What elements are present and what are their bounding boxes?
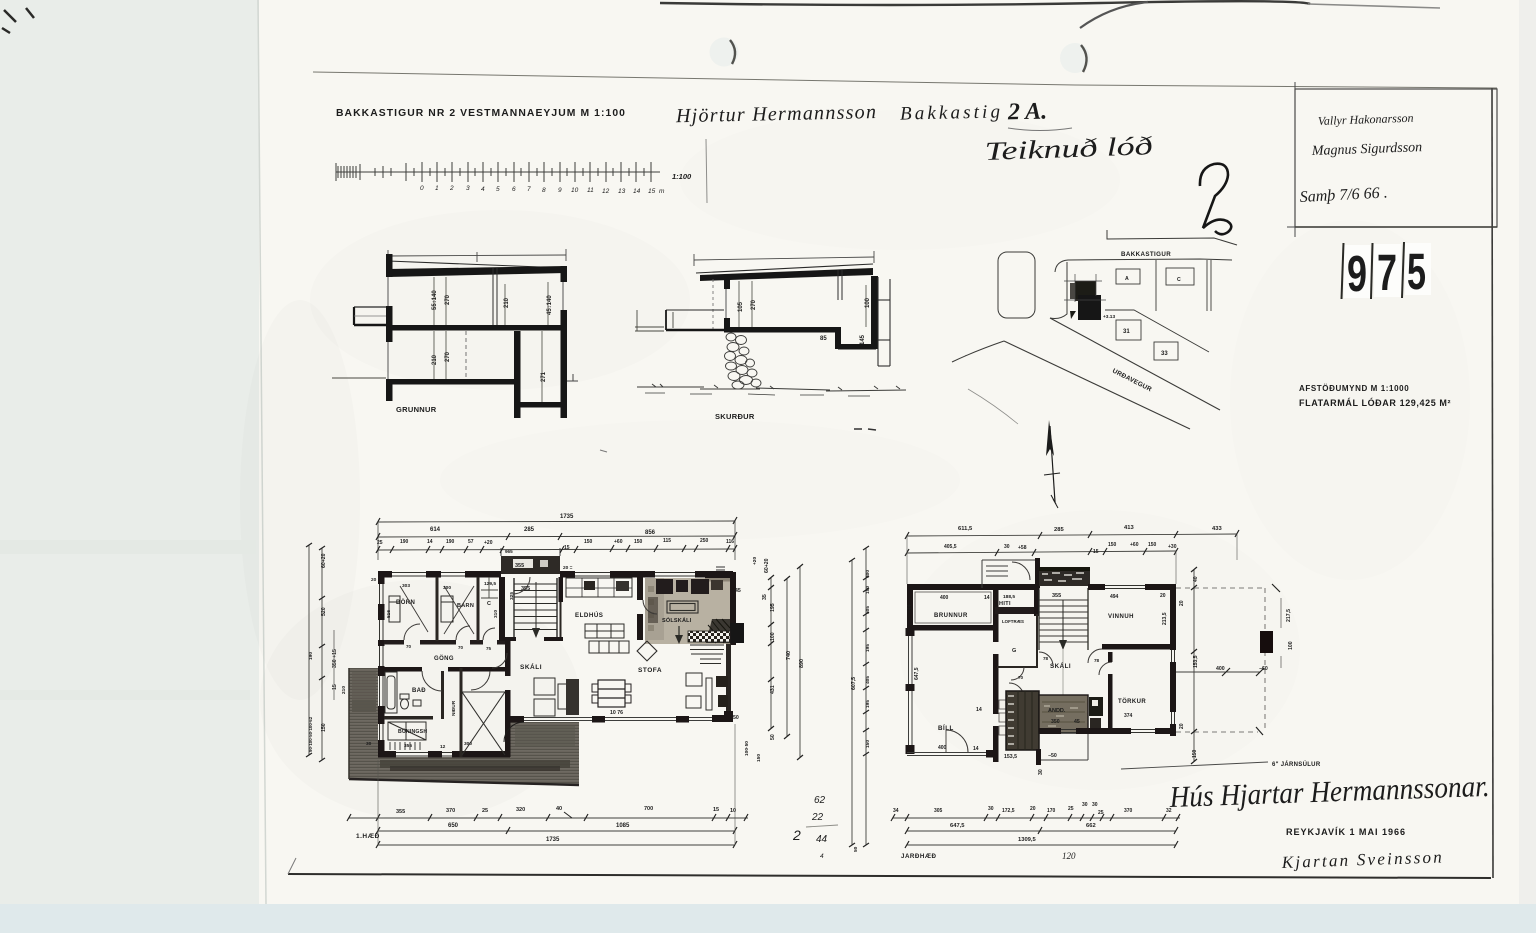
svg-text:15: 15 xyxy=(332,684,338,690)
svg-text:145: 145 xyxy=(860,334,866,345)
svg-text:6: 6 xyxy=(512,186,516,193)
svg-text:+3.13: +3.13 xyxy=(1103,314,1115,320)
svg-text:4: 4 xyxy=(820,853,824,860)
svg-text:14: 14 xyxy=(973,746,979,752)
svg-text:30: 30 xyxy=(1092,802,1098,808)
svg-text:370: 370 xyxy=(446,808,455,814)
svg-text:172,5: 172,5 xyxy=(1002,808,1015,814)
svg-text:m: m xyxy=(659,188,665,195)
svg-text:25: 25 xyxy=(1098,810,1104,816)
svg-text:195: 195 xyxy=(865,644,871,652)
svg-text:SÓLSKÁLI: SÓLSKÁLI xyxy=(662,616,692,624)
svg-text:31: 31 xyxy=(1123,329,1130,335)
svg-text:150: 150 xyxy=(321,723,327,732)
svg-text:856: 856 xyxy=(645,530,656,536)
svg-text:10: 10 xyxy=(571,187,579,194)
svg-text:ANDD.: ANDD. xyxy=(1048,708,1066,714)
svg-text:20: 20 xyxy=(371,577,377,583)
svg-text:150: 150 xyxy=(865,740,871,748)
svg-text:2: 2 xyxy=(792,827,801,843)
svg-text:30: 30 xyxy=(1004,544,1010,550)
svg-text:433: 433 xyxy=(1212,526,1222,532)
svg-text:15: 15 xyxy=(1093,549,1099,555)
svg-text:75: 75 xyxy=(486,646,492,651)
svg-text:SKÁLI: SKÁLI xyxy=(520,662,542,671)
svg-text:9: 9 xyxy=(1347,245,1367,302)
svg-text:+60: +60 xyxy=(614,539,623,545)
svg-text:400: 400 xyxy=(1216,666,1225,672)
svg-text:25: 25 xyxy=(377,540,383,546)
svg-text:9: 9 xyxy=(558,187,562,194)
svg-text:607,5: 607,5 xyxy=(851,677,857,690)
svg-text:20: 20 xyxy=(1160,593,1166,599)
svg-text:285: 285 xyxy=(524,527,535,533)
svg-text:1.HÆÐ: 1.HÆÐ xyxy=(356,833,380,840)
svg-text:NIÐUR: NIÐUR xyxy=(451,700,457,716)
svg-text:5: 5 xyxy=(496,186,500,193)
svg-text:505: 505 xyxy=(865,606,871,614)
svg-text:62: 62 xyxy=(814,795,826,806)
svg-text:150: 150 xyxy=(634,539,643,545)
svg-text:116: 116 xyxy=(726,539,734,545)
svg-text:Bakkastig: Bakkastig xyxy=(900,101,1000,124)
svg-text:30: 30 xyxy=(1038,769,1044,775)
svg-text:15: 15 xyxy=(564,545,570,551)
svg-text:195: 195 xyxy=(865,700,871,708)
svg-text:12: 12 xyxy=(440,744,446,750)
svg-text:30: 30 xyxy=(988,806,994,812)
svg-text:494: 494 xyxy=(1110,594,1119,600)
svg-text:FLATARMÁL LÓÐAR 129,425 M²: FLATARMÁL LÓÐAR 129,425 M² xyxy=(1299,397,1451,408)
svg-text:1: 1 xyxy=(435,185,439,192)
svg-text:370: 370 xyxy=(1124,808,1133,814)
svg-text:−50: −50 xyxy=(1048,753,1057,759)
svg-text:15: 15 xyxy=(713,807,719,813)
svg-text:210: 210 xyxy=(341,686,347,694)
svg-text:355: 355 xyxy=(396,809,405,815)
svg-text:1:100: 1:100 xyxy=(672,172,692,181)
svg-text:44: 44 xyxy=(907,604,913,610)
svg-text:ELDHÚS: ELDHÚS xyxy=(575,612,603,619)
svg-text:153,5: 153,5 xyxy=(1193,655,1199,668)
svg-text:650: 650 xyxy=(448,823,459,829)
svg-text:7: 7 xyxy=(527,186,531,193)
svg-text:190: 190 xyxy=(446,539,455,545)
svg-text:44: 44 xyxy=(816,834,828,845)
svg-text:+20: +20 xyxy=(484,540,493,546)
svg-text:+58: +58 xyxy=(1018,545,1027,551)
svg-text:AFSTÖÐUMYND M 1:1000: AFSTÖÐUMYND M 1:1000 xyxy=(1299,384,1409,393)
svg-text:5: 5 xyxy=(1407,243,1426,300)
svg-text:25: 25 xyxy=(1068,806,1074,812)
svg-text:4: 4 xyxy=(481,186,485,193)
svg-text:70: 70 xyxy=(406,644,412,649)
svg-text:303: 303 xyxy=(402,583,410,589)
svg-text:115: 115 xyxy=(663,538,671,544)
svg-text:70: 70 xyxy=(1018,675,1024,680)
svg-text:6" JÁRNSÚLUR: 6" JÁRNSÚLUR xyxy=(1272,761,1321,768)
svg-text:170: 170 xyxy=(1047,808,1056,814)
svg-text:BRUNNUR: BRUNNUR xyxy=(934,613,968,619)
svg-text:45: 45 xyxy=(735,588,741,594)
svg-text:70: 70 xyxy=(458,645,464,650)
svg-text:150: 150 xyxy=(756,754,762,762)
svg-text:50: 50 xyxy=(853,846,859,852)
svg-text:JARÐHÆÐ: JARÐHÆÐ xyxy=(901,853,937,860)
svg-text:60+20: 60+20 xyxy=(764,558,770,573)
svg-text:100: 100 xyxy=(1288,641,1294,650)
svg-text:153,5: 153,5 xyxy=(1004,754,1017,760)
svg-text:14: 14 xyxy=(976,707,982,713)
svg-text:285: 285 xyxy=(1054,527,1064,533)
svg-text:33: 33 xyxy=(1161,351,1168,357)
svg-text:431: 431 xyxy=(770,685,776,694)
svg-text:BAKKASTIGUR: BAKKASTIGUR xyxy=(1121,251,1171,258)
svg-text:129,5: 129,5 xyxy=(484,581,496,587)
svg-text:0: 0 xyxy=(420,185,424,192)
svg-text:C: C xyxy=(1177,277,1181,283)
svg-text:150: 150 xyxy=(865,586,871,594)
svg-text:85: 85 xyxy=(820,336,827,342)
svg-text:150: 150 xyxy=(1108,542,1117,548)
svg-text:15: 15 xyxy=(648,188,656,195)
svg-text:50: 50 xyxy=(733,715,739,721)
svg-text:VINNUH: VINNUH xyxy=(1108,614,1134,620)
svg-text:190: 190 xyxy=(400,539,409,545)
svg-text:BAÐ: BAÐ xyxy=(412,688,426,694)
svg-text:7: 7 xyxy=(1377,244,1397,301)
svg-text:2 A.: 2 A. xyxy=(1007,99,1048,126)
svg-text:890: 890 xyxy=(799,659,805,668)
svg-text:210: 210 xyxy=(432,354,438,365)
svg-text:1735: 1735 xyxy=(546,837,560,843)
svg-text:250: 250 xyxy=(700,538,709,544)
svg-text:213,5: 213,5 xyxy=(1162,612,1168,625)
svg-text:35: 35 xyxy=(762,594,768,600)
svg-text:BARN: BARN xyxy=(457,603,474,609)
svg-text:C: C xyxy=(487,601,491,607)
svg-text:14: 14 xyxy=(633,188,641,195)
svg-text:G: G xyxy=(1012,648,1016,654)
svg-text:14: 14 xyxy=(984,595,990,601)
svg-text:1735: 1735 xyxy=(560,514,574,520)
svg-text:34: 34 xyxy=(893,808,899,814)
svg-text:374: 374 xyxy=(1124,713,1133,719)
svg-text:GRUNNUR: GRUNNUR xyxy=(396,405,437,414)
svg-text:BAKKASTIGUR NR 2 VESTMANNAEYJU: BAKKASTIGUR NR 2 VESTMANNAEYJUM M 1:100 xyxy=(336,107,626,119)
svg-text:190: 190 xyxy=(308,652,314,660)
svg-text:2: 2 xyxy=(449,185,454,192)
svg-text:305: 305 xyxy=(934,808,943,814)
svg-text:325: 325 xyxy=(509,592,515,600)
svg-text:LOFTRÆS: LOFTRÆS xyxy=(1002,619,1024,624)
svg-text:22: 22 xyxy=(811,812,824,823)
svg-text:740: 740 xyxy=(786,651,792,660)
svg-text:20: 20 xyxy=(1030,806,1036,812)
svg-text:40: 40 xyxy=(1193,576,1199,582)
svg-text:HITI: HITI xyxy=(999,601,1011,607)
svg-text:20 =: 20 = xyxy=(563,565,573,571)
svg-text:405,5: 405,5 xyxy=(944,544,957,550)
svg-text:100·50: 100·50 xyxy=(744,741,750,756)
svg-text:78: 78 xyxy=(1043,656,1049,661)
svg-text:57: 57 xyxy=(468,539,474,545)
svg-text:14: 14 xyxy=(427,539,433,545)
svg-text:310: 310 xyxy=(493,610,499,618)
svg-text:20: 20 xyxy=(1179,723,1185,729)
svg-text:355: 355 xyxy=(515,563,524,569)
svg-text:78: 78 xyxy=(1094,658,1100,663)
svg-text:90·100·50·100·62: 90·100·50·100·62 xyxy=(308,716,313,752)
svg-text:50: 50 xyxy=(770,734,776,740)
svg-text:195: 195 xyxy=(770,603,776,612)
svg-text:11: 11 xyxy=(587,187,594,194)
svg-text:400: 400 xyxy=(938,745,947,751)
svg-text:647,5: 647,5 xyxy=(914,667,920,680)
svg-text:+30: +30 xyxy=(1168,544,1177,550)
svg-text:300: 300 xyxy=(443,585,451,591)
svg-text:355: 355 xyxy=(1052,593,1061,599)
svg-text:Teiknuð lóð: Teiknuð lóð xyxy=(984,131,1153,166)
svg-text:516: 516 xyxy=(386,610,392,618)
svg-text:350 +15: 350 +15 xyxy=(332,649,338,668)
svg-text:3: 3 xyxy=(466,185,470,192)
svg-text:188,5: 188,5 xyxy=(1003,594,1015,600)
svg-text:30: 30 xyxy=(1082,802,1088,808)
svg-text:60+20: 60+20 xyxy=(321,553,327,568)
svg-text:Hjörtur Hermannsson: Hjörtur Hermannsson xyxy=(675,101,876,127)
svg-text:40: 40 xyxy=(556,806,562,812)
svg-text:GÖNG: GÖNG xyxy=(434,655,454,662)
svg-text:20: 20 xyxy=(1179,600,1185,606)
svg-text:300: 300 xyxy=(464,741,472,747)
svg-text:STOFA: STOFA xyxy=(638,667,662,674)
svg-text:BÍLL: BÍLL xyxy=(938,724,954,732)
svg-text:662: 662 xyxy=(1086,823,1096,829)
svg-text:700: 700 xyxy=(644,806,653,812)
svg-text:150: 150 xyxy=(1192,749,1198,758)
svg-text:TÖRKUR: TÖRKUR xyxy=(1118,698,1146,705)
svg-text:REYKJAVÍK 1 MAI 1966: REYKJAVÍK 1 MAI 1966 xyxy=(1286,827,1406,838)
svg-text:55↕140: 55↕140 xyxy=(432,290,438,310)
svg-text:45: 45 xyxy=(1074,719,1080,725)
svg-text:520: 520 xyxy=(321,607,327,616)
svg-text:150: 150 xyxy=(584,539,593,545)
svg-text:10 76: 10 76 xyxy=(610,710,623,716)
svg-text:1085: 1085 xyxy=(616,823,630,829)
svg-text:+20: +20 xyxy=(752,557,758,565)
svg-text:400: 400 xyxy=(865,570,871,578)
svg-text:647,5: 647,5 xyxy=(950,823,965,829)
svg-text:30: 30 xyxy=(366,741,372,747)
svg-text:320: 320 xyxy=(516,807,525,813)
svg-text:100: 100 xyxy=(770,632,776,641)
svg-text:350: 350 xyxy=(1051,719,1060,725)
svg-text:25: 25 xyxy=(482,808,488,814)
svg-text:BÚNINGSH: BÚNINGSH xyxy=(398,728,427,735)
svg-text:217,5: 217,5 xyxy=(1286,609,1292,622)
svg-text:1309,5: 1309,5 xyxy=(1018,837,1037,843)
svg-text:611,5: 611,5 xyxy=(958,526,973,532)
svg-text:150: 150 xyxy=(1148,542,1157,548)
svg-text:A: A xyxy=(1125,276,1129,282)
svg-text:400: 400 xyxy=(940,595,949,601)
svg-text:12: 12 xyxy=(602,188,610,195)
svg-text:+60: +60 xyxy=(1130,542,1139,548)
svg-text:8: 8 xyxy=(542,187,546,194)
svg-text:413: 413 xyxy=(1124,525,1134,531)
svg-text:405: 405 xyxy=(865,676,871,684)
svg-text:SKURÐUR: SKURÐUR xyxy=(715,412,755,421)
svg-text:614: 614 xyxy=(430,527,441,533)
svg-text:13: 13 xyxy=(618,188,626,195)
svg-text:355: 355 xyxy=(404,743,412,749)
svg-text:120: 120 xyxy=(1062,851,1076,861)
